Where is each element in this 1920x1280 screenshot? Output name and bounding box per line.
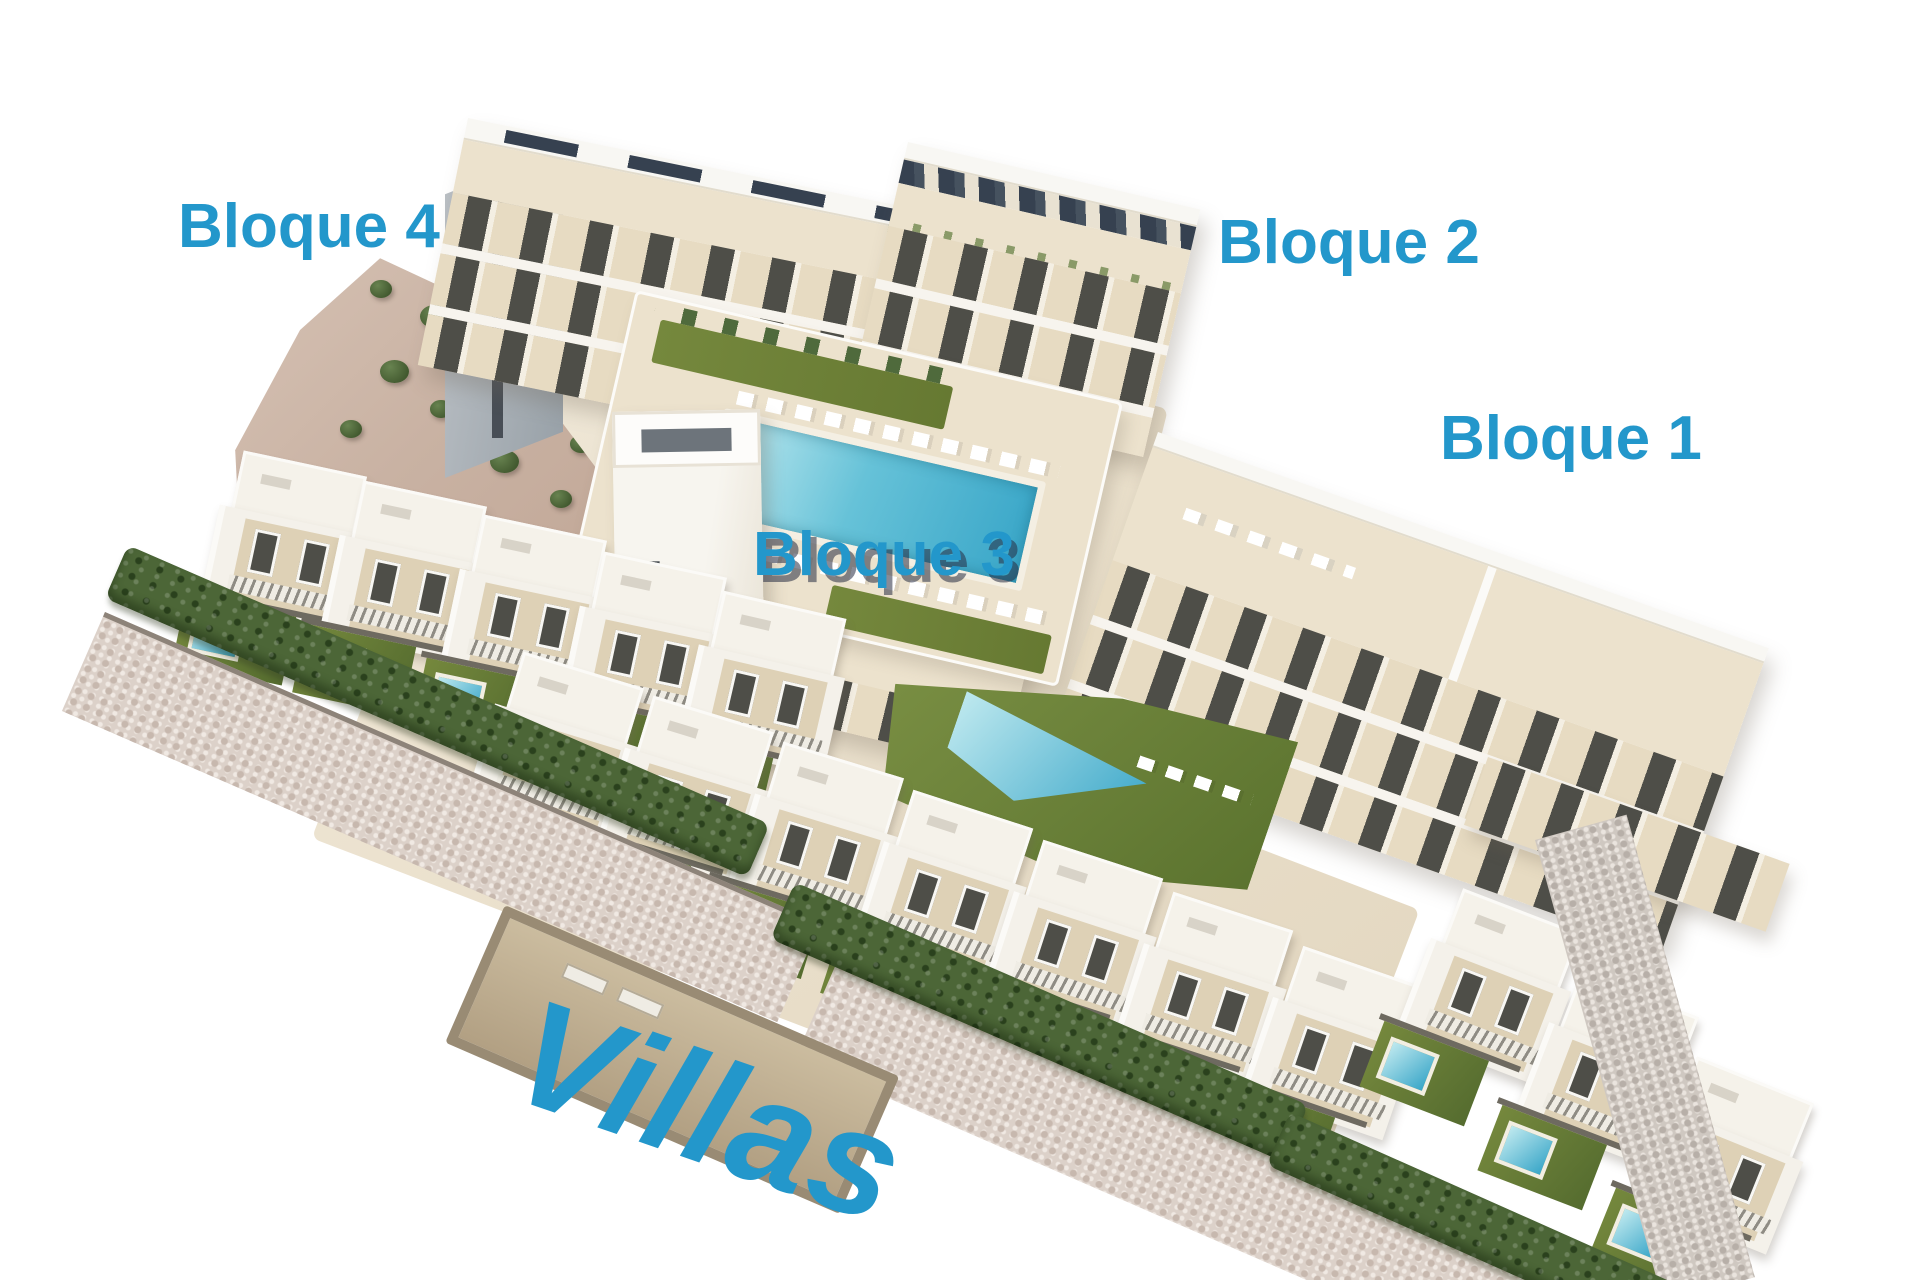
terrace-furniture xyxy=(620,575,651,591)
label-bloque-3: Bloque 3 xyxy=(753,524,1015,586)
terrace-divider xyxy=(1449,566,1498,682)
tower-opening xyxy=(641,428,732,453)
terrace-furniture xyxy=(1474,914,1506,934)
terrace-furniture xyxy=(1182,507,1356,578)
label-bloque-4: Bloque 4 xyxy=(178,196,440,258)
terrace-furniture xyxy=(260,474,291,490)
terrace-furniture xyxy=(1186,917,1218,936)
terrace-furniture xyxy=(537,676,569,694)
terrace-furniture xyxy=(1708,1083,1740,1104)
shrub xyxy=(550,490,572,508)
terrace-furniture xyxy=(500,538,531,554)
terrace-furniture xyxy=(1056,865,1088,884)
tower-roof xyxy=(612,409,761,468)
shrub xyxy=(380,360,409,383)
terrace-furniture xyxy=(380,504,411,520)
terrace-furniture xyxy=(926,815,958,834)
villa-pool xyxy=(1494,1120,1558,1180)
terrace-furniture xyxy=(1316,971,1348,990)
terrace-furniture xyxy=(797,766,829,784)
site-plan-render: Bloque 4 Bloque 2 Bloque 1 Bloque 3 Vill… xyxy=(0,0,1920,1280)
shrub xyxy=(370,280,392,298)
terrace-furniture xyxy=(740,614,771,630)
label-bloque-2: Bloque 2 xyxy=(1218,212,1480,274)
terrace-furniture xyxy=(667,720,699,738)
label-bloque-1: Bloque 1 xyxy=(1440,408,1702,470)
villa-pool xyxy=(1376,1036,1440,1096)
shrub xyxy=(340,420,362,438)
